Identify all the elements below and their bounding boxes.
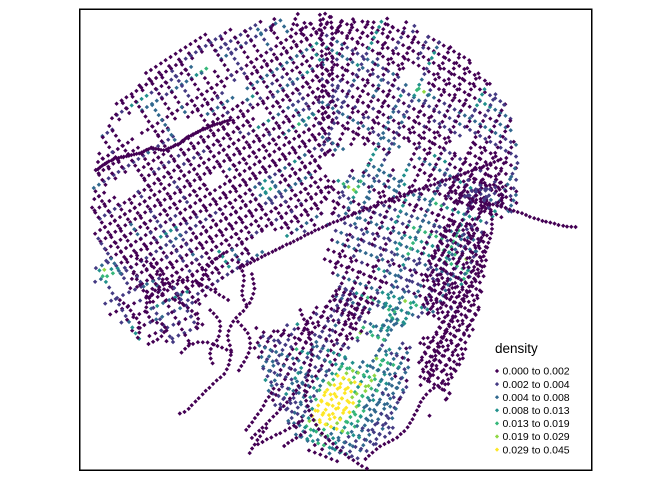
svg-text:0.002 to 0.004: 0.002 to 0.004 — [503, 379, 570, 391]
svg-text:0.029 to 0.045: 0.029 to 0.045 — [503, 444, 570, 456]
svg-text:0.004 to 0.008: 0.004 to 0.008 — [503, 392, 570, 404]
svg-text:0.000 to 0.002: 0.000 to 0.002 — [503, 366, 570, 378]
svg-text:0.008 to 0.013: 0.008 to 0.013 — [503, 405, 570, 417]
svg-text:density: density — [495, 341, 538, 356]
svg-text:0.013 to 0.019: 0.013 to 0.019 — [503, 418, 570, 430]
svg-text:0.019 to 0.029: 0.019 to 0.029 — [503, 431, 570, 443]
